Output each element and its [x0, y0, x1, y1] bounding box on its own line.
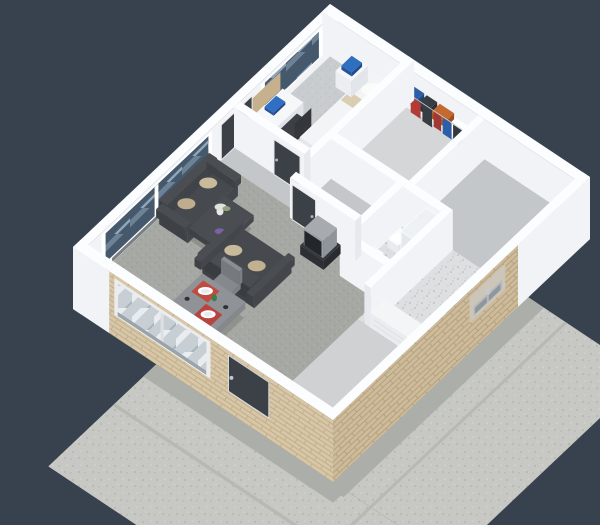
sofa-pillow [224, 245, 242, 256]
render-stage [0, 0, 600, 525]
dining-chair-back [239, 269, 242, 286]
cup [185, 297, 190, 301]
cup [223, 305, 228, 309]
plate-inner [204, 312, 213, 317]
flowers-green [223, 206, 231, 211]
wall-front-brick [333, 413, 341, 482]
green-bottle [211, 294, 217, 301]
sofa-pillow [199, 178, 217, 189]
door-handle [311, 215, 314, 218]
plate-inner [201, 289, 210, 294]
entry-door-handle [229, 376, 233, 380]
partition-hall-living [355, 215, 361, 261]
door-handle [275, 159, 278, 162]
faucet [486, 289, 490, 295]
sofa-pillow [248, 260, 266, 271]
floorplan-svg [0, 0, 600, 525]
sofa-pillow [177, 198, 195, 209]
partition-bath-kitchen [364, 284, 370, 328]
